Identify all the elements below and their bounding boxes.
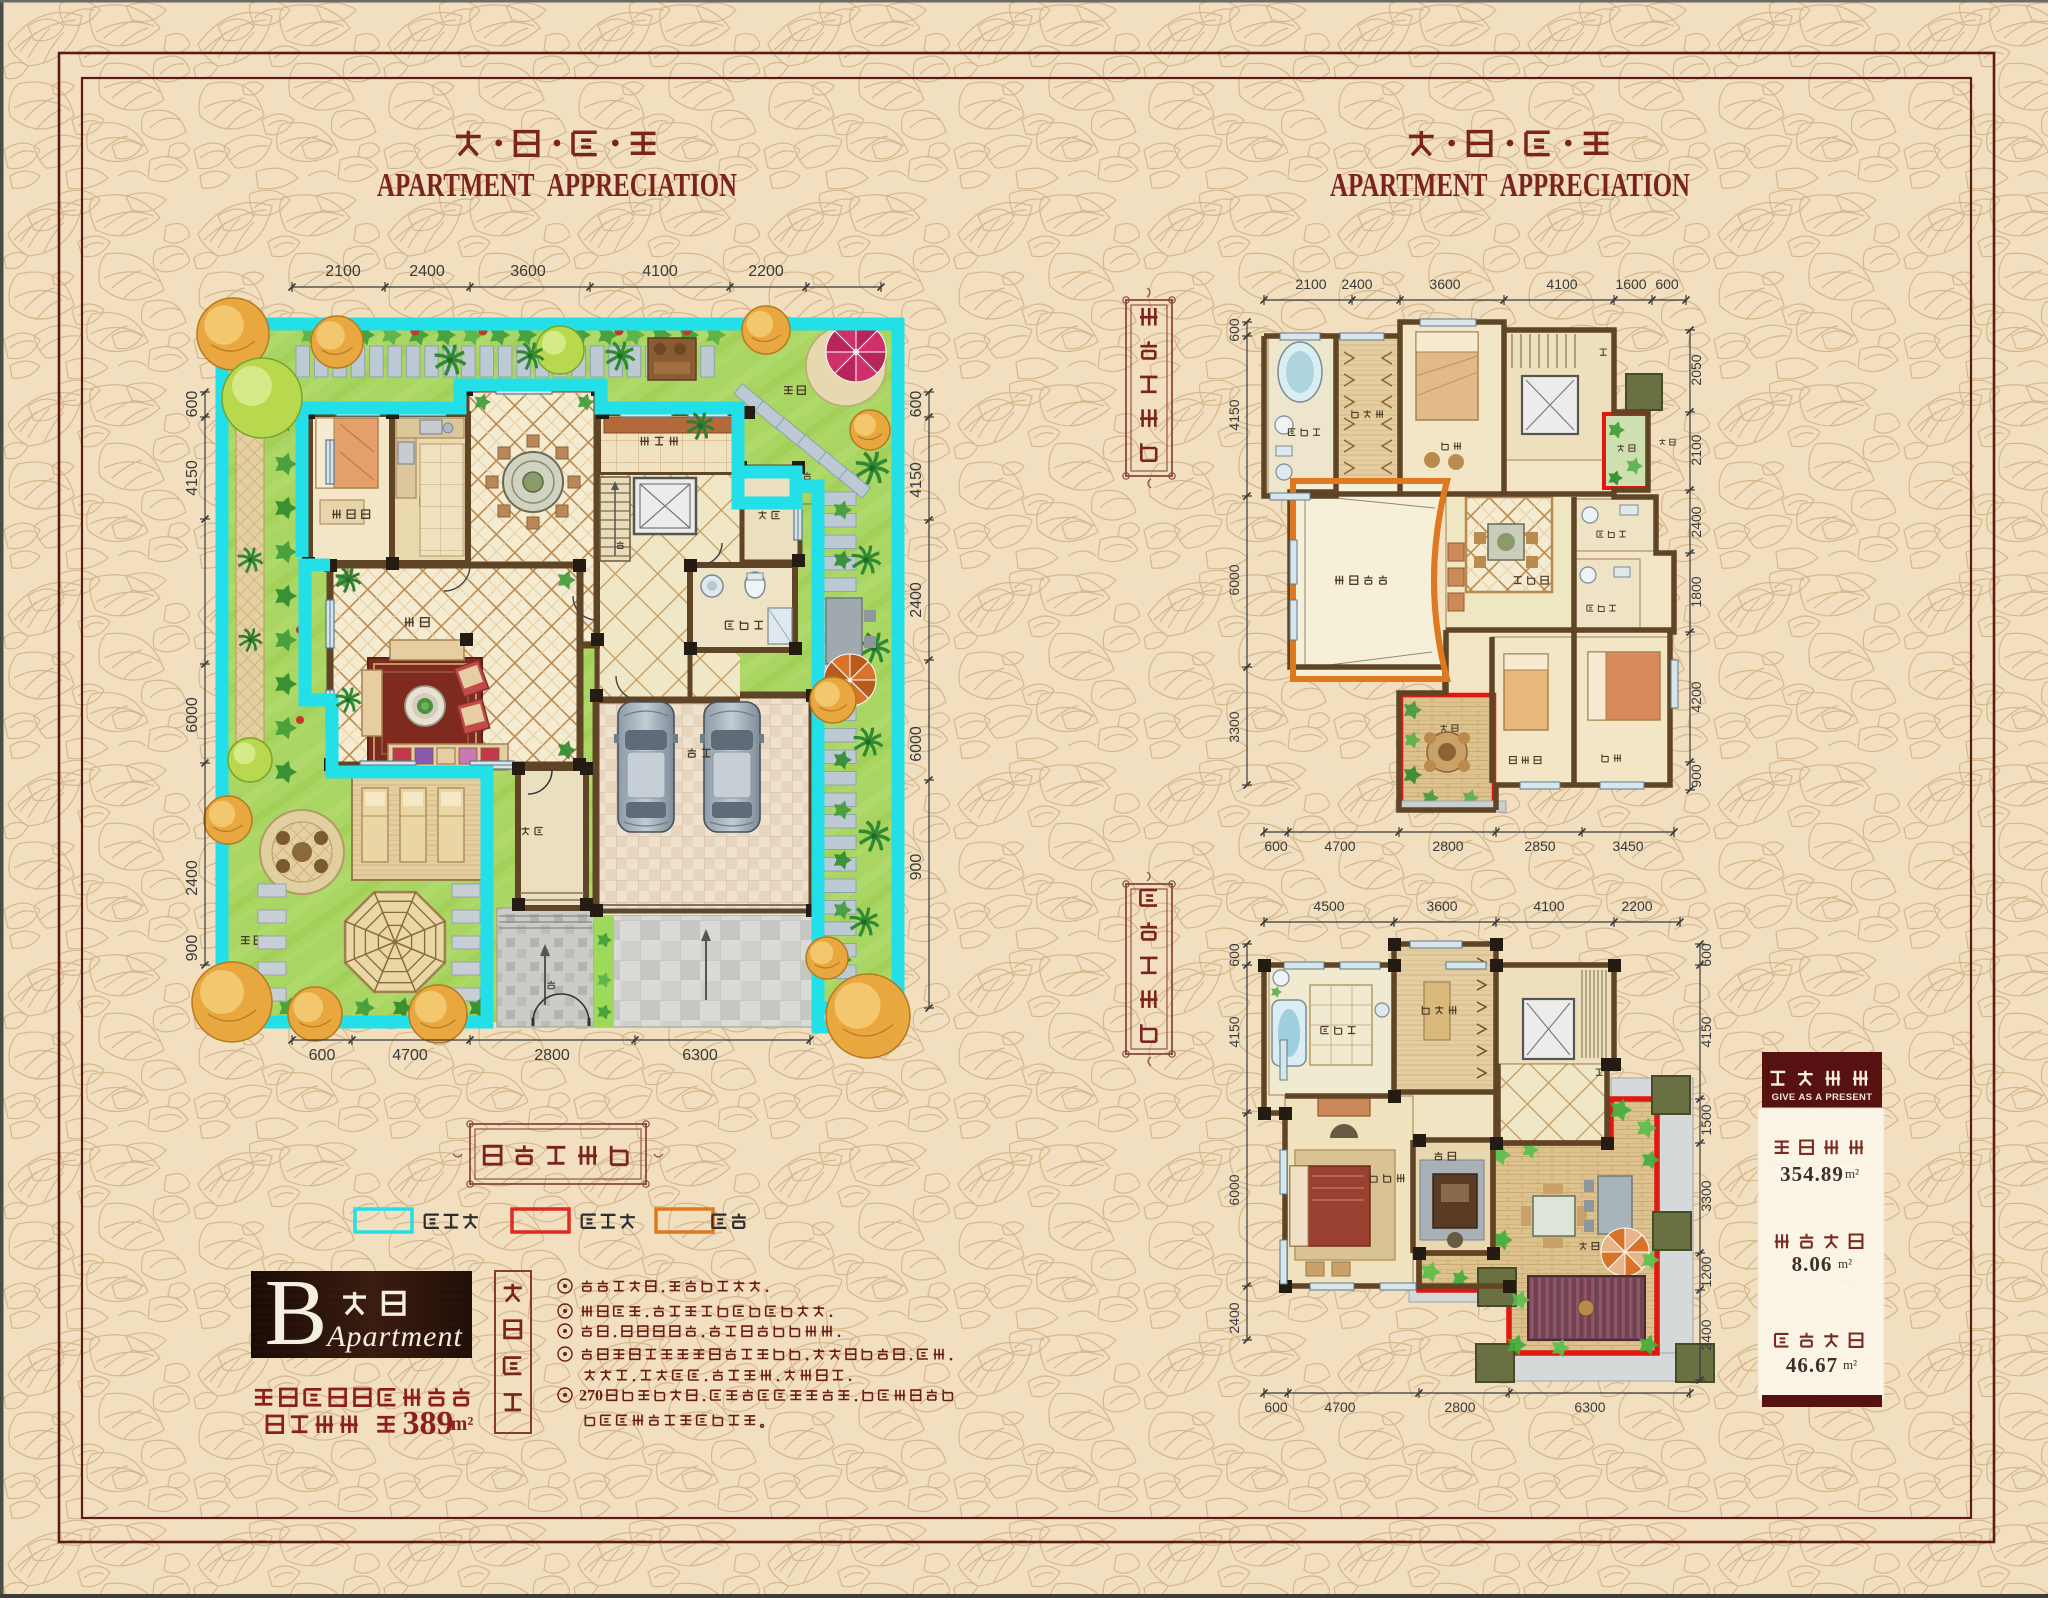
svg-text:6300: 6300 (682, 1047, 718, 1064)
svg-text:m²: m² (1838, 1256, 1852, 1271)
svg-text:4150: 4150 (1226, 399, 1242, 430)
svg-text:900: 900 (184, 935, 201, 962)
svg-text:APARTMENT APPRECIATION: APARTMENT APPRECIATION (1330, 167, 1690, 204)
svg-text:GIVE AS A PRESENT: GIVE AS A PRESENT (1772, 1092, 1873, 1103)
svg-text:4700: 4700 (392, 1047, 428, 1064)
svg-text:600: 600 (1226, 943, 1242, 967)
svg-text:2400: 2400 (1698, 1319, 1714, 1350)
svg-text:2400: 2400 (184, 860, 201, 896)
svg-text:900: 900 (908, 854, 925, 881)
svg-text:600: 600 (908, 391, 925, 418)
svg-text:4150: 4150 (1226, 1016, 1242, 1047)
svg-text:1500: 1500 (1698, 1104, 1714, 1135)
svg-text:4150: 4150 (1698, 1016, 1714, 1047)
svg-text:600: 600 (1264, 1399, 1288, 1415)
svg-text:2800: 2800 (1444, 1399, 1475, 1415)
svg-text:4150: 4150 (184, 460, 201, 496)
svg-text:4150: 4150 (908, 462, 925, 498)
svg-text:1800: 1800 (1688, 576, 1704, 607)
svg-text:3300: 3300 (1698, 1180, 1714, 1211)
svg-text:900: 900 (1688, 764, 1704, 788)
svg-text:2400: 2400 (1688, 506, 1704, 537)
svg-text:Apartment: Apartment (325, 1320, 463, 1353)
svg-text:354.89: 354.89 (1780, 1162, 1844, 1186)
svg-text:6000: 6000 (908, 726, 925, 762)
svg-text:6300: 6300 (1574, 1399, 1605, 1415)
svg-text:4100: 4100 (1546, 276, 1577, 292)
svg-text:4100: 4100 (1533, 898, 1564, 914)
svg-text:600: 600 (184, 391, 201, 418)
svg-text:3600: 3600 (510, 263, 546, 280)
svg-text:2200: 2200 (748, 263, 784, 280)
svg-text:2100: 2100 (1295, 276, 1326, 292)
svg-text:3600: 3600 (1429, 276, 1460, 292)
svg-text:600: 600 (1698, 943, 1714, 967)
svg-text:8.06: 8.06 (1792, 1252, 1833, 1276)
svg-text:46.67: 46.67 (1786, 1353, 1838, 1377)
svg-text:2050: 2050 (1688, 354, 1704, 385)
svg-text:2400: 2400 (908, 582, 925, 618)
svg-text:2400: 2400 (1226, 1302, 1242, 1333)
svg-text:2400: 2400 (1341, 276, 1372, 292)
svg-text:6000: 6000 (184, 697, 201, 733)
svg-text:3600: 3600 (1426, 898, 1457, 914)
svg-text:m²: m² (1845, 1166, 1859, 1181)
svg-text:600: 600 (1655, 276, 1679, 292)
svg-text:1200: 1200 (1698, 1256, 1714, 1287)
svg-text:6000: 6000 (1226, 564, 1242, 595)
svg-text:m²: m² (451, 1413, 474, 1435)
svg-text:2800: 2800 (1432, 838, 1463, 854)
svg-text:600: 600 (1226, 318, 1242, 342)
svg-text:4700: 4700 (1324, 838, 1355, 854)
svg-text:2100: 2100 (325, 263, 361, 280)
svg-text:3450: 3450 (1612, 838, 1643, 854)
svg-text:2850: 2850 (1524, 838, 1555, 854)
svg-text:4700: 4700 (1324, 1399, 1355, 1415)
svg-text:3300: 3300 (1226, 711, 1242, 742)
svg-text:600: 600 (1264, 838, 1288, 854)
svg-text:6000: 6000 (1226, 1174, 1242, 1205)
svg-text:m²: m² (1843, 1357, 1857, 1372)
svg-text:APARTMENT APPRECIATION: APARTMENT APPRECIATION (377, 167, 737, 204)
svg-text:2200: 2200 (1621, 898, 1652, 914)
svg-text:1600: 1600 (1615, 276, 1646, 292)
svg-text:2100: 2100 (1688, 434, 1704, 465)
svg-text:B: B (265, 1261, 328, 1365)
svg-text:4500: 4500 (1313, 898, 1344, 914)
svg-text:600: 600 (309, 1047, 336, 1064)
svg-text:389: 389 (403, 1405, 454, 1442)
svg-text:2800: 2800 (534, 1047, 570, 1064)
svg-text:4200: 4200 (1688, 681, 1704, 712)
svg-text:2400: 2400 (409, 263, 445, 280)
svg-text:4100: 4100 (642, 263, 678, 280)
svg-text:270: 270 (579, 1387, 603, 1404)
